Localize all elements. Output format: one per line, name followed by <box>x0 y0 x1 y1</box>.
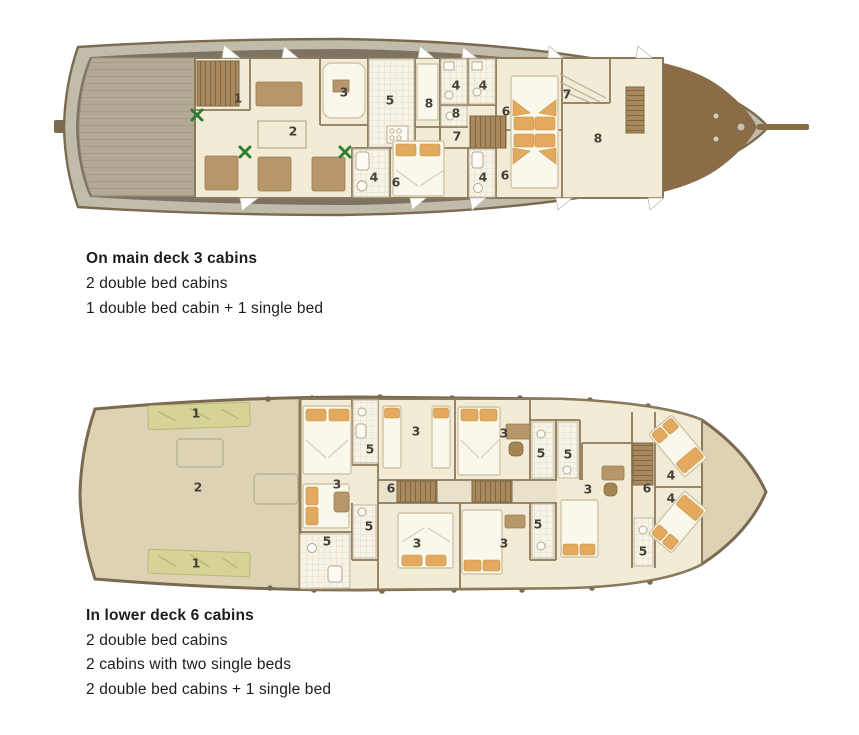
caption-line: 2 cabins with two single beds <box>86 653 506 678</box>
room-label-3: 3 <box>412 424 421 439</box>
sofa-icon <box>256 82 302 106</box>
caption-line: 1 double bed cabin + 1 single bed <box>86 296 506 321</box>
room-label-3: 3 <box>584 482 593 497</box>
room-label-3: 3 <box>500 536 509 551</box>
lower-deck-heading: In lower deck 6 cabins <box>86 604 506 629</box>
room-label-4: 4 <box>370 170 379 185</box>
caption-line: 2 double bed cabins <box>86 629 506 654</box>
room-label-6: 6 <box>392 175 401 190</box>
room-label-3: 3 <box>340 85 349 100</box>
deck-fitting <box>714 114 719 119</box>
room-label-2: 2 <box>194 480 203 495</box>
room-label-4: 4 <box>479 170 488 185</box>
room-label-5: 5 <box>639 544 648 559</box>
lower-stairs-icon <box>633 443 653 485</box>
windlass-icon <box>737 123 745 131</box>
room-label-1: 1 <box>192 556 201 571</box>
room-label-4: 4 <box>667 468 676 483</box>
room-label-3: 3 <box>500 426 509 441</box>
room-label-5: 5 <box>365 519 374 534</box>
room-label-1: 1 <box>234 91 243 106</box>
room-label-6: 6 <box>502 104 511 119</box>
seat-icon <box>312 157 345 191</box>
deck-fitting <box>714 137 719 142</box>
caption-line: 2 double bed cabins + 1 single bed <box>86 678 506 703</box>
desk-icon <box>602 466 624 480</box>
room-label-5: 5 <box>366 442 375 457</box>
main-deck-plan: 1235844876784646 <box>54 39 809 215</box>
yacht-deck-plans-page: 1235844876784646 <box>0 0 859 735</box>
berth <box>417 64 438 120</box>
main-deck-heading: On main deck 3 cabins <box>86 246 506 271</box>
lower-deck-plan: 12133555363644555335 <box>80 394 766 594</box>
lower-deck-lines: 2 double bed cabins2 cabins with two sin… <box>86 629 506 703</box>
seat-icon <box>205 156 238 190</box>
room-label-5: 5 <box>386 93 395 108</box>
room-label-8: 8 <box>425 96 434 111</box>
main-deck-lines: 2 double bed cabins1 double bed cabin + … <box>86 271 506 321</box>
chair-icon <box>604 483 617 496</box>
room-label-7: 7 <box>563 87 572 102</box>
room-label-4: 4 <box>667 491 676 506</box>
room-label-7: 7 <box>453 129 462 144</box>
desk-icon <box>505 515 525 528</box>
room-label-5: 5 <box>534 517 543 532</box>
lower-deck-caption: In lower deck 6 cabins 2 double bed cabi… <box>86 604 506 702</box>
room-label-8: 8 <box>452 106 461 121</box>
room-label-5: 5 <box>537 446 546 461</box>
corridor-stairs-icon <box>472 481 512 502</box>
room-label-4: 4 <box>452 78 461 93</box>
room-label-4: 4 <box>479 78 488 93</box>
bowsprit-icon <box>757 124 809 130</box>
desk-icon <box>506 424 530 439</box>
corridor-stairs-icon <box>397 481 437 502</box>
room-label-1: 1 <box>192 406 201 421</box>
chair-icon <box>334 492 349 512</box>
chair-icon <box>509 442 523 456</box>
master-bed <box>511 76 558 188</box>
mid-stairs-icon <box>470 116 506 148</box>
room-label-5: 5 <box>323 534 332 549</box>
seat-icon <box>258 157 291 191</box>
room-label-3: 3 <box>333 477 342 492</box>
room-label-6: 6 <box>501 168 510 183</box>
room-label-5: 5 <box>564 447 573 462</box>
room-label-6: 6 <box>387 481 396 496</box>
room-label-8: 8 <box>594 131 603 146</box>
main-deck-caption: On main deck 3 cabins 2 double bed cabin… <box>86 246 506 322</box>
companionway-stairs-icon <box>626 87 644 133</box>
room-label-2: 2 <box>289 124 298 139</box>
room-label-3: 3 <box>413 536 422 551</box>
room-label-6: 6 <box>643 481 652 496</box>
caption-line: 2 double bed cabins <box>86 271 506 296</box>
